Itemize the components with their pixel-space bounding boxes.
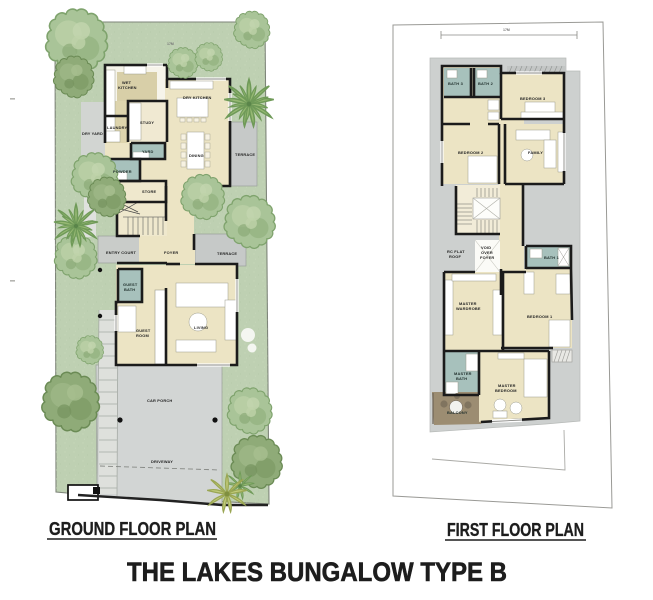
svg-text:17M: 17M bbox=[503, 28, 510, 32]
svg-text:TERRACE: TERRACE bbox=[235, 152, 255, 157]
svg-text:BALCONY: BALCONY bbox=[447, 410, 468, 415]
svg-text:BATH 2: BATH 2 bbox=[478, 81, 494, 86]
svg-text:BATH 1: BATH 1 bbox=[544, 255, 560, 260]
svg-text:ENTRY COURT: ENTRY COURT bbox=[106, 250, 137, 255]
svg-text:CAR PORCH: CAR PORCH bbox=[147, 398, 172, 403]
svg-text:ROOF: ROOF bbox=[449, 254, 461, 259]
svg-text:FOYER: FOYER bbox=[480, 255, 494, 260]
svg-text:FIRST FLOOR PLAN: FIRST FLOOR PLAN bbox=[447, 519, 584, 540]
svg-text:YARD: YARD bbox=[142, 149, 153, 154]
svg-text:BATH: BATH bbox=[456, 376, 467, 381]
svg-text:DRIVEWAY: DRIVEWAY bbox=[151, 459, 173, 464]
svg-text:FOYER: FOYER bbox=[164, 250, 178, 255]
svg-text:STUDY: STUDY bbox=[140, 120, 154, 125]
svg-text:GROUND FLOOR PLAN: GROUND FLOOR PLAN bbox=[49, 518, 216, 539]
svg-text:STORE: STORE bbox=[142, 189, 157, 194]
svg-text:DRY YARD: DRY YARD bbox=[82, 131, 103, 136]
svg-text:KITCHEN: KITCHEN bbox=[118, 85, 137, 90]
svg-text:LAUNDRY: LAUNDRY bbox=[107, 125, 127, 130]
svg-text:THE LAKES BUNGALOW TYPE B: THE LAKES BUNGALOW TYPE B bbox=[127, 557, 507, 587]
svg-text:FAMILY: FAMILY bbox=[528, 150, 543, 155]
svg-text:BEDROOM 1: BEDROOM 1 bbox=[527, 314, 553, 319]
svg-text:WARDROBE: WARDROBE bbox=[456, 306, 481, 311]
svg-text:LIVING: LIVING bbox=[194, 325, 208, 330]
svg-text:BATH: BATH bbox=[124, 287, 135, 292]
svg-text:TERRACE: TERRACE bbox=[217, 251, 237, 256]
svg-text:BEDROOM: BEDROOM bbox=[495, 388, 517, 393]
svg-text:POWDER: POWDER bbox=[113, 169, 132, 174]
svg-text:DRY KITCHEN: DRY KITCHEN bbox=[183, 95, 212, 100]
svg-text:ROOM: ROOM bbox=[136, 333, 149, 338]
svg-text:BATH 3: BATH 3 bbox=[448, 81, 464, 86]
svg-text:BEDROOM 3: BEDROOM 3 bbox=[520, 96, 546, 101]
svg-text:DINING: DINING bbox=[189, 153, 204, 158]
svg-text:BEDROOM 2: BEDROOM 2 bbox=[458, 150, 484, 155]
svg-text:17M: 17M bbox=[167, 42, 174, 46]
